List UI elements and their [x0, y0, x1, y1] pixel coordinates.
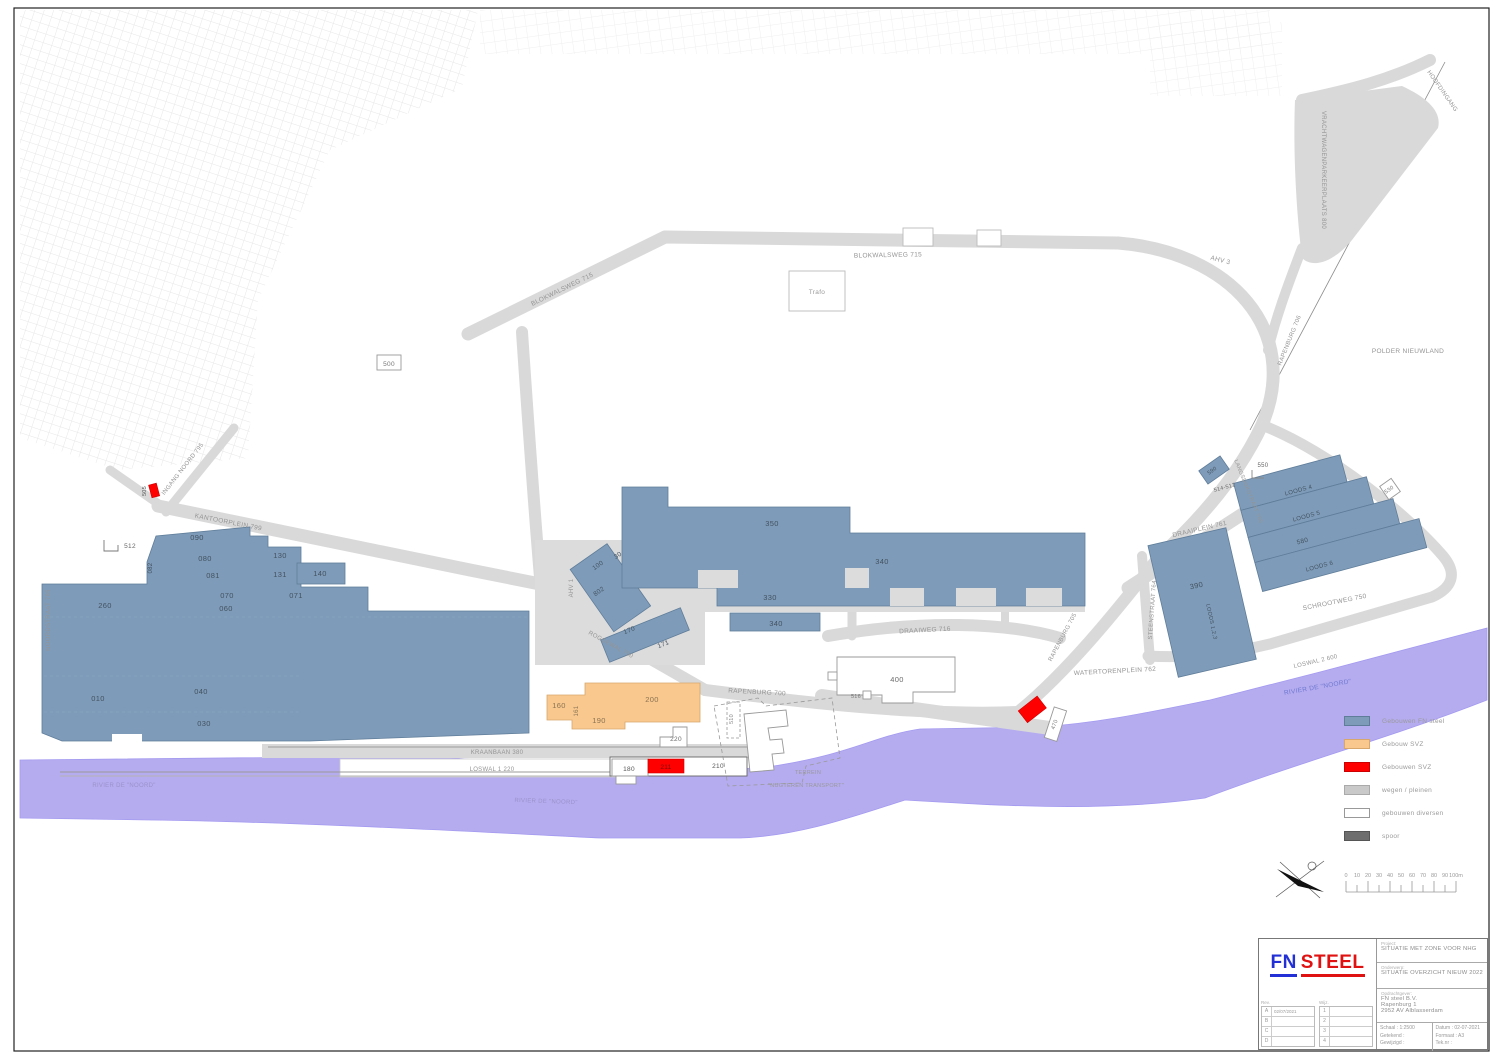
revision-id: D: [1262, 1037, 1272, 1046]
title-block: FNSTEEL Rev. A02/07/2021BCD Wijz. 1234 P…: [1258, 938, 1488, 1050]
bldg-190: 190: [592, 716, 605, 725]
format-label: Formaat :: [1436, 1033, 1457, 1039]
legend-gebouw-svz: Gebouw SVZ: [1344, 739, 1445, 749]
gate-bldg-2: [977, 230, 1001, 246]
revision-table: Rev. A02/07/2021BCD: [1261, 1000, 1315, 1047]
change-id: 3: [1320, 1027, 1330, 1036]
area-vrachtwagenparkeerplaats: VRACHTWAGENPARKEERPLAATS 800: [1320, 111, 1326, 229]
bldg-512: 512: [124, 543, 136, 550]
scalebar-number: 50: [1398, 873, 1404, 879]
legend-diversen-swatch: [1344, 808, 1370, 818]
bldg-400-annex: [828, 672, 837, 680]
road-noordstraat: NOORDSTRAAT 785: [46, 589, 52, 651]
change-row: 1: [1320, 1007, 1372, 1016]
subject-section: Onderwerp: SITUATIE OVERZICHT NIEUW 2022: [1377, 963, 1487, 989]
meta-section: Schaal : 1:2500 Getekend : Gewijzigd : D…: [1377, 1023, 1487, 1051]
revision-id: A: [1262, 1007, 1272, 1016]
scalebar-number: 60: [1409, 873, 1415, 879]
meta-left-cell: Schaal : 1:2500 Getekend : Gewijzigd :: [1377, 1023, 1432, 1051]
logo-fn-text: FN: [1270, 952, 1296, 977]
scale-value: 1:2500: [1399, 1025, 1414, 1031]
revision-row: D: [1262, 1036, 1314, 1046]
bldg-081: 081: [206, 571, 219, 580]
scalebar-number: 80: [1431, 873, 1437, 879]
bldg-090: 090: [190, 533, 203, 542]
title-block-left: FNSTEEL Rev. A02/07/2021BCD Wijz. 1234: [1259, 939, 1377, 1049]
gate-bldg-1: [903, 228, 933, 246]
scalebar-number: 40: [1387, 873, 1393, 879]
legend-gebouwen-svz: Gebouwen SVZ: [1344, 762, 1445, 772]
scale-label: Schaal :: [1380, 1025, 1398, 1031]
bldg-330: 330: [763, 593, 776, 602]
change-row: 2: [1320, 1016, 1372, 1026]
scalebar-number: 30: [1376, 873, 1382, 879]
water-noord-west: RIVIER DE "NOORD": [92, 783, 155, 789]
bldg-350: 350: [765, 519, 778, 528]
change-row: 3: [1320, 1026, 1372, 1036]
bldg-160: 160: [552, 701, 565, 710]
logo-steel-text: STEEL: [1301, 952, 1365, 977]
legend-fn-steel: Gebouwen FN steel: [1344, 716, 1445, 726]
subject-value: SITUATIE OVERZICHT NIEUW 2022: [1381, 970, 1483, 976]
scalebar-number: 10: [1354, 873, 1360, 879]
scalebar-number: 20: [1365, 873, 1371, 879]
road-loswal-1: LOSWAL 1 220: [470, 767, 515, 773]
bldg-trafo: Trafo: [809, 289, 826, 296]
scalebar-number: 0: [1344, 873, 1347, 879]
revision-row: C: [1262, 1026, 1314, 1036]
legend-wegen: wegen / pleinen: [1344, 785, 1445, 795]
road-kraanbaan: KRAANBAAN 380: [471, 750, 524, 756]
changes-table: Wijz. 1234: [1319, 1000, 1373, 1047]
fn-steel-logo: FNSTEEL: [1259, 952, 1376, 974]
revision-row: B: [1262, 1016, 1314, 1026]
legend-diversen: gebouwen diversen: [1344, 808, 1445, 818]
bldg-516-shape: [863, 691, 871, 699]
area-terrein: TERREIN: [795, 770, 821, 776]
bldg-505: 505: [142, 486, 148, 496]
changed-label: Gewijzigd :: [1380, 1040, 1404, 1046]
legend-spoor-swatch: [1344, 831, 1370, 841]
bldg-131: 131: [273, 570, 286, 579]
bldg-040: 040: [194, 687, 207, 696]
date-label: Datum :: [1436, 1025, 1454, 1031]
legend-diversen-label: gebouwen diversen: [1382, 810, 1443, 817]
bldg-510: 510: [729, 714, 735, 724]
legend-wegen-swatch: [1344, 785, 1370, 795]
legend-fn-steel-label: Gebouwen FN steel: [1382, 718, 1445, 725]
revision-row: A02/07/2021: [1262, 1007, 1314, 1016]
legend-spoor-label: spoor: [1382, 833, 1400, 840]
bldg-340-south: 340: [769, 619, 782, 628]
legend-gebouwen-svz-label: Gebouwen SVZ: [1382, 764, 1432, 771]
dwg-label: Tek.nr :: [1436, 1040, 1452, 1046]
change-id: 1: [1320, 1007, 1330, 1016]
bldg-210: 210: [712, 763, 724, 770]
road-blokwalsweg: BLOKWALSWEG 715: [854, 251, 922, 259]
legend-gebouw-svz-label: Gebouw SVZ: [1382, 741, 1424, 748]
format-value: A3: [1458, 1033, 1464, 1039]
date-value: 02-07-2021: [1454, 1025, 1480, 1031]
bldg-140: 140: [313, 569, 326, 578]
legend: Gebouwen FN steelGebouw SVZGebouwen SVZw…: [1344, 716, 1445, 854]
change-id: 2: [1320, 1017, 1330, 1026]
legend-gebouwen-svz-swatch: [1344, 762, 1370, 772]
meta-right-cell: Datum : 02-07-2021 Formaat : A3 Tek.nr :: [1432, 1023, 1488, 1051]
bldg-070: 070: [220, 591, 233, 600]
bldg-211: 211: [660, 764, 671, 771]
site-plan-sheet: BLOKWALSWEG 715BLOKWALSWEG 715AHV 3RAPEN…: [0, 0, 1500, 1061]
area-polder-nieuwland: POLDER NIEUWLAND: [1372, 348, 1444, 355]
project-value: SITUATIE MET ZONE VOOR NHG: [1381, 946, 1483, 952]
bldg-071: 071: [289, 591, 302, 600]
map-canvas: BLOKWALSWEG 715BLOKWALSWEG 715AHV 3RAPEN…: [0, 0, 1500, 1061]
road-ahv-1: AHV 1: [569, 578, 575, 597]
west-complex-notch: [112, 734, 142, 743]
bldg-080: 080: [198, 554, 211, 563]
drawn-label: Getekend :: [1380, 1033, 1404, 1039]
scalebar-number: 70: [1420, 873, 1426, 879]
bldg-180: 180: [623, 766, 635, 773]
parcel-500: 500: [383, 361, 395, 368]
bldg-260: 260: [98, 601, 111, 610]
bldg-180-annex: [616, 776, 636, 784]
legend-spoor: spoor: [1344, 831, 1445, 841]
client-section: Opdrachtgever: FN steel B.V. Rapenburg 1…: [1377, 989, 1487, 1023]
area-nugteren: "NUGTEREN TRANSPORT": [768, 783, 844, 789]
bldg-516: 516: [851, 694, 861, 700]
bldg-400: 400: [890, 675, 903, 684]
bldg-161: 161: [574, 705, 580, 716]
change-id: 4: [1320, 1037, 1330, 1046]
scalebar-number: 100m: [1449, 873, 1463, 879]
bldg-010: 010: [91, 694, 104, 703]
bldg-030: 030: [197, 719, 210, 728]
legend-fn-steel-swatch: [1344, 716, 1370, 726]
client-line-3: 2952 AV Alblasserdam: [1381, 1008, 1483, 1014]
legend-gebouw-svz-swatch: [1344, 739, 1370, 749]
change-row: 4: [1320, 1036, 1372, 1046]
bldg-130: 130: [273, 551, 286, 560]
scalebar-number: 90: [1442, 873, 1448, 879]
bldg-220: 220: [670, 736, 682, 743]
bldg-200: 200: [645, 695, 658, 704]
bldg-550: 550: [1258, 463, 1269, 469]
legend-wegen-label: wegen / pleinen: [1382, 787, 1432, 794]
bldg-060: 060: [219, 604, 232, 613]
title-block-right: Project: SITUATIE MET ZONE VOOR NHG Onde…: [1377, 939, 1487, 1049]
project-section: Project: SITUATIE MET ZONE VOOR NHG: [1377, 939, 1487, 963]
revision-value: 02/07/2021: [1272, 1009, 1297, 1014]
revision-id: B: [1262, 1017, 1272, 1026]
revision-id: C: [1262, 1027, 1272, 1036]
bldg-082: 082: [148, 562, 154, 573]
bldg-340: 340: [875, 557, 888, 566]
